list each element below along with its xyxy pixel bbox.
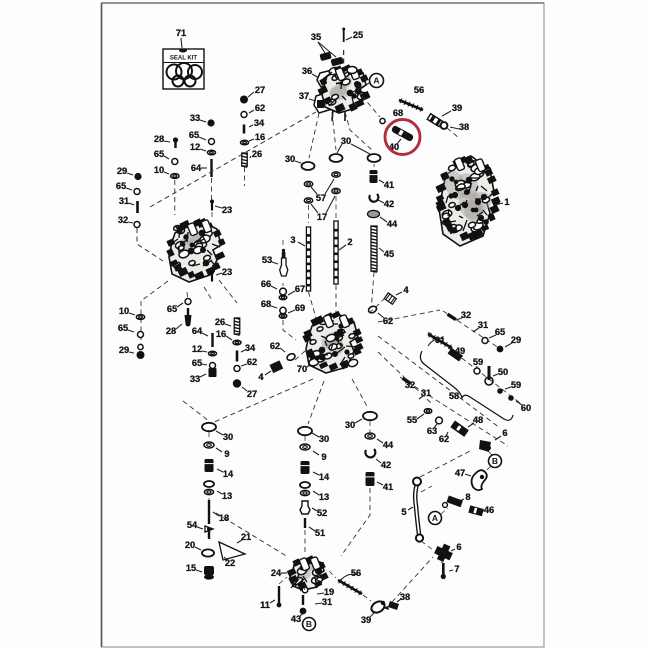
svg-text:13: 13: [319, 492, 329, 502]
svg-text:7: 7: [454, 564, 459, 574]
svg-text:14: 14: [319, 472, 330, 482]
svg-text:59: 59: [511, 380, 521, 390]
svg-text:26: 26: [252, 149, 262, 159]
svg-text:28: 28: [166, 326, 176, 336]
svg-text:71: 71: [176, 28, 186, 38]
svg-text:30: 30: [345, 420, 355, 430]
svg-text:46: 46: [484, 505, 494, 515]
svg-text:A: A: [373, 76, 379, 86]
svg-text:48: 48: [473, 415, 483, 425]
svg-text:21: 21: [241, 532, 251, 542]
svg-text:65: 65: [116, 181, 126, 191]
svg-text:37: 37: [299, 91, 309, 101]
svg-text:42: 42: [381, 460, 391, 470]
svg-text:29: 29: [119, 345, 129, 355]
svg-text:4: 4: [403, 285, 409, 295]
svg-text:64: 64: [192, 326, 203, 336]
svg-text:44: 44: [387, 219, 398, 229]
svg-text:44: 44: [383, 440, 394, 450]
svg-text:30: 30: [341, 136, 351, 146]
svg-text:14: 14: [223, 469, 234, 479]
svg-text:23: 23: [222, 205, 232, 215]
svg-text:65: 65: [154, 149, 164, 159]
svg-text:10: 10: [154, 165, 164, 175]
svg-text:9: 9: [224, 449, 229, 459]
svg-text:30: 30: [285, 154, 295, 164]
svg-text:59: 59: [473, 357, 483, 367]
svg-text:56: 56: [414, 85, 424, 95]
svg-text:6: 6: [456, 542, 461, 552]
svg-text:31: 31: [478, 320, 488, 330]
svg-text:30: 30: [223, 432, 233, 442]
svg-text:58: 58: [449, 391, 459, 401]
svg-text:41: 41: [383, 482, 393, 492]
svg-text:38: 38: [459, 122, 469, 132]
svg-text:70: 70: [297, 364, 307, 374]
svg-text:64: 64: [191, 163, 202, 173]
svg-text:69: 69: [295, 303, 305, 313]
svg-text:17: 17: [317, 212, 327, 222]
svg-text:39: 39: [452, 103, 462, 113]
svg-text:A: A: [432, 513, 438, 523]
svg-text:11: 11: [260, 600, 270, 610]
svg-text:27: 27: [247, 389, 257, 399]
svg-text:3: 3: [290, 235, 295, 245]
svg-text:34: 34: [254, 118, 265, 128]
svg-text:29: 29: [117, 166, 127, 176]
svg-text:41: 41: [384, 180, 394, 190]
svg-text:53: 53: [262, 255, 272, 265]
svg-text:31: 31: [322, 597, 332, 607]
svg-text:36: 36: [302, 66, 312, 76]
svg-text:B: B: [492, 456, 498, 466]
svg-text:43: 43: [291, 614, 301, 624]
svg-text:31: 31: [119, 196, 129, 206]
svg-text:65: 65: [167, 304, 177, 314]
svg-text:32: 32: [118, 215, 128, 225]
svg-text:SEAL KIT: SEAL KIT: [170, 56, 198, 62]
svg-text:B: B: [306, 619, 312, 629]
svg-text:26: 26: [215, 317, 225, 327]
svg-text:42: 42: [384, 199, 394, 209]
svg-text:62: 62: [247, 357, 257, 367]
svg-text:12: 12: [192, 344, 202, 354]
svg-text:33: 33: [190, 374, 200, 384]
svg-text:62: 62: [270, 341, 280, 351]
svg-text:28: 28: [154, 134, 164, 144]
svg-text:32: 32: [461, 310, 471, 320]
svg-text:16: 16: [216, 329, 226, 339]
svg-text:66: 66: [261, 279, 271, 289]
svg-text:12: 12: [190, 142, 200, 152]
svg-text:1: 1: [504, 197, 509, 207]
svg-text:27: 27: [255, 85, 265, 95]
svg-text:65: 65: [118, 323, 128, 333]
svg-text:13: 13: [222, 491, 232, 501]
svg-text:60: 60: [521, 403, 531, 413]
svg-text:65: 65: [495, 327, 505, 337]
svg-text:62: 62: [439, 434, 449, 444]
svg-text:62: 62: [383, 316, 393, 326]
svg-text:65: 65: [192, 358, 202, 368]
svg-text:6: 6: [502, 428, 507, 438]
svg-text:62: 62: [255, 103, 265, 113]
svg-text:16: 16: [255, 132, 265, 142]
svg-text:25: 25: [353, 30, 363, 40]
svg-text:10: 10: [119, 306, 129, 316]
svg-text:34: 34: [245, 343, 256, 353]
svg-text:24: 24: [271, 568, 282, 578]
svg-text:30: 30: [319, 434, 329, 444]
svg-text:39: 39: [361, 615, 371, 625]
svg-text:63: 63: [427, 426, 437, 436]
svg-text:52: 52: [317, 508, 327, 518]
svg-text:68: 68: [261, 299, 271, 309]
svg-text:67: 67: [295, 284, 305, 294]
svg-text:5: 5: [401, 507, 406, 517]
svg-text:54: 54: [187, 520, 198, 530]
svg-text:51: 51: [315, 528, 325, 538]
svg-text:33: 33: [190, 113, 200, 123]
svg-text:19: 19: [324, 587, 334, 597]
svg-text:68: 68: [393, 108, 403, 118]
svg-text:9: 9: [321, 452, 326, 462]
svg-text:29: 29: [511, 335, 521, 345]
svg-text:45: 45: [384, 249, 394, 259]
svg-text:20: 20: [185, 540, 195, 550]
svg-text:57: 57: [316, 193, 326, 203]
svg-text:4: 4: [258, 372, 264, 382]
svg-text:65: 65: [189, 130, 199, 140]
svg-text:56: 56: [351, 568, 361, 578]
svg-text:38: 38: [400, 592, 410, 602]
svg-text:2: 2: [347, 237, 352, 247]
svg-text:50: 50: [498, 367, 508, 377]
svg-text:15: 15: [186, 563, 196, 573]
svg-text:23: 23: [222, 267, 232, 277]
svg-text:47: 47: [455, 468, 465, 478]
svg-text:35: 35: [311, 32, 321, 42]
svg-text:55: 55: [407, 415, 417, 425]
svg-text:8: 8: [465, 492, 470, 502]
